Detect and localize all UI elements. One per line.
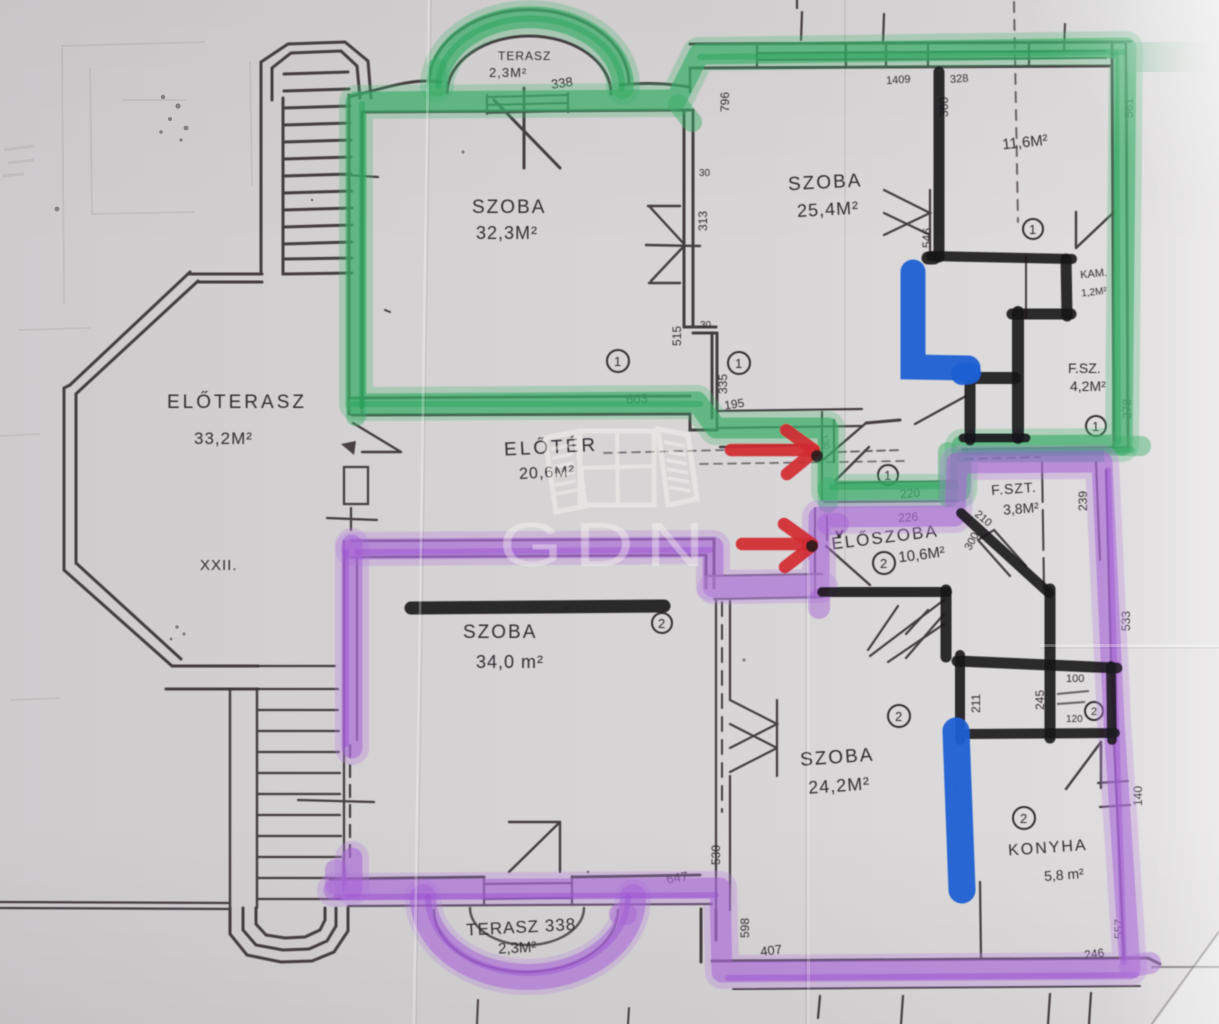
svg-text:SZOBA: SZOBA	[463, 622, 537, 643]
svg-text:25,4M²: 25,4M²	[797, 198, 860, 221]
svg-text:2,3M²: 2,3M²	[498, 939, 537, 958]
svg-text:2: 2	[1091, 706, 1097, 718]
svg-text:120: 120	[1066, 714, 1083, 725]
svg-text:SZOBA: SZOBA	[472, 197, 546, 218]
svg-text:33,2M²: 33,2M²	[194, 429, 253, 448]
svg-text:2: 2	[658, 616, 665, 631]
svg-text:32,3M²: 32,3M²	[476, 223, 538, 243]
svg-text:195: 195	[723, 396, 745, 413]
svg-text:34,0 m²: 34,0 m²	[476, 652, 544, 672]
svg-text:546: 546	[920, 228, 934, 248]
svg-text:335: 335	[716, 374, 730, 394]
svg-text:30: 30	[699, 168, 711, 179]
svg-text:796: 796	[718, 92, 732, 112]
svg-text:1: 1	[735, 356, 742, 371]
svg-text:2: 2	[880, 556, 887, 571]
svg-text:SZOBA: SZOBA	[788, 170, 863, 195]
svg-text:515: 515	[670, 326, 684, 346]
svg-text:1: 1	[614, 354, 621, 369]
svg-text:TERASZ: TERASZ	[498, 49, 551, 63]
svg-text:328: 328	[950, 73, 969, 86]
svg-text:313: 313	[696, 211, 710, 231]
svg-text:GDN: GDN	[499, 510, 716, 579]
svg-text:530: 530	[709, 845, 723, 865]
svg-text:2,3M²: 2,3M²	[489, 65, 527, 80]
svg-text:2: 2	[895, 709, 902, 724]
svg-text:598: 598	[738, 918, 752, 938]
svg-text:2: 2	[1020, 811, 1027, 826]
svg-text:211: 211	[969, 694, 983, 713]
svg-text:1: 1	[1029, 222, 1036, 237]
svg-text:XXII.: XXII.	[200, 557, 238, 574]
svg-text:30: 30	[700, 320, 712, 331]
svg-text:F.SZT.: F.SZT.	[991, 479, 1038, 498]
svg-text:100: 100	[1066, 673, 1084, 685]
svg-text:F.SZ.: F.SZ.	[1068, 360, 1101, 376]
svg-text:1409: 1409	[886, 73, 911, 87]
svg-text:5,8 m²: 5,8 m²	[1044, 865, 1085, 884]
svg-text:ELŐTERASZ: ELŐTERASZ	[167, 391, 307, 413]
svg-text:3,8M²: 3,8M²	[1003, 499, 1040, 517]
